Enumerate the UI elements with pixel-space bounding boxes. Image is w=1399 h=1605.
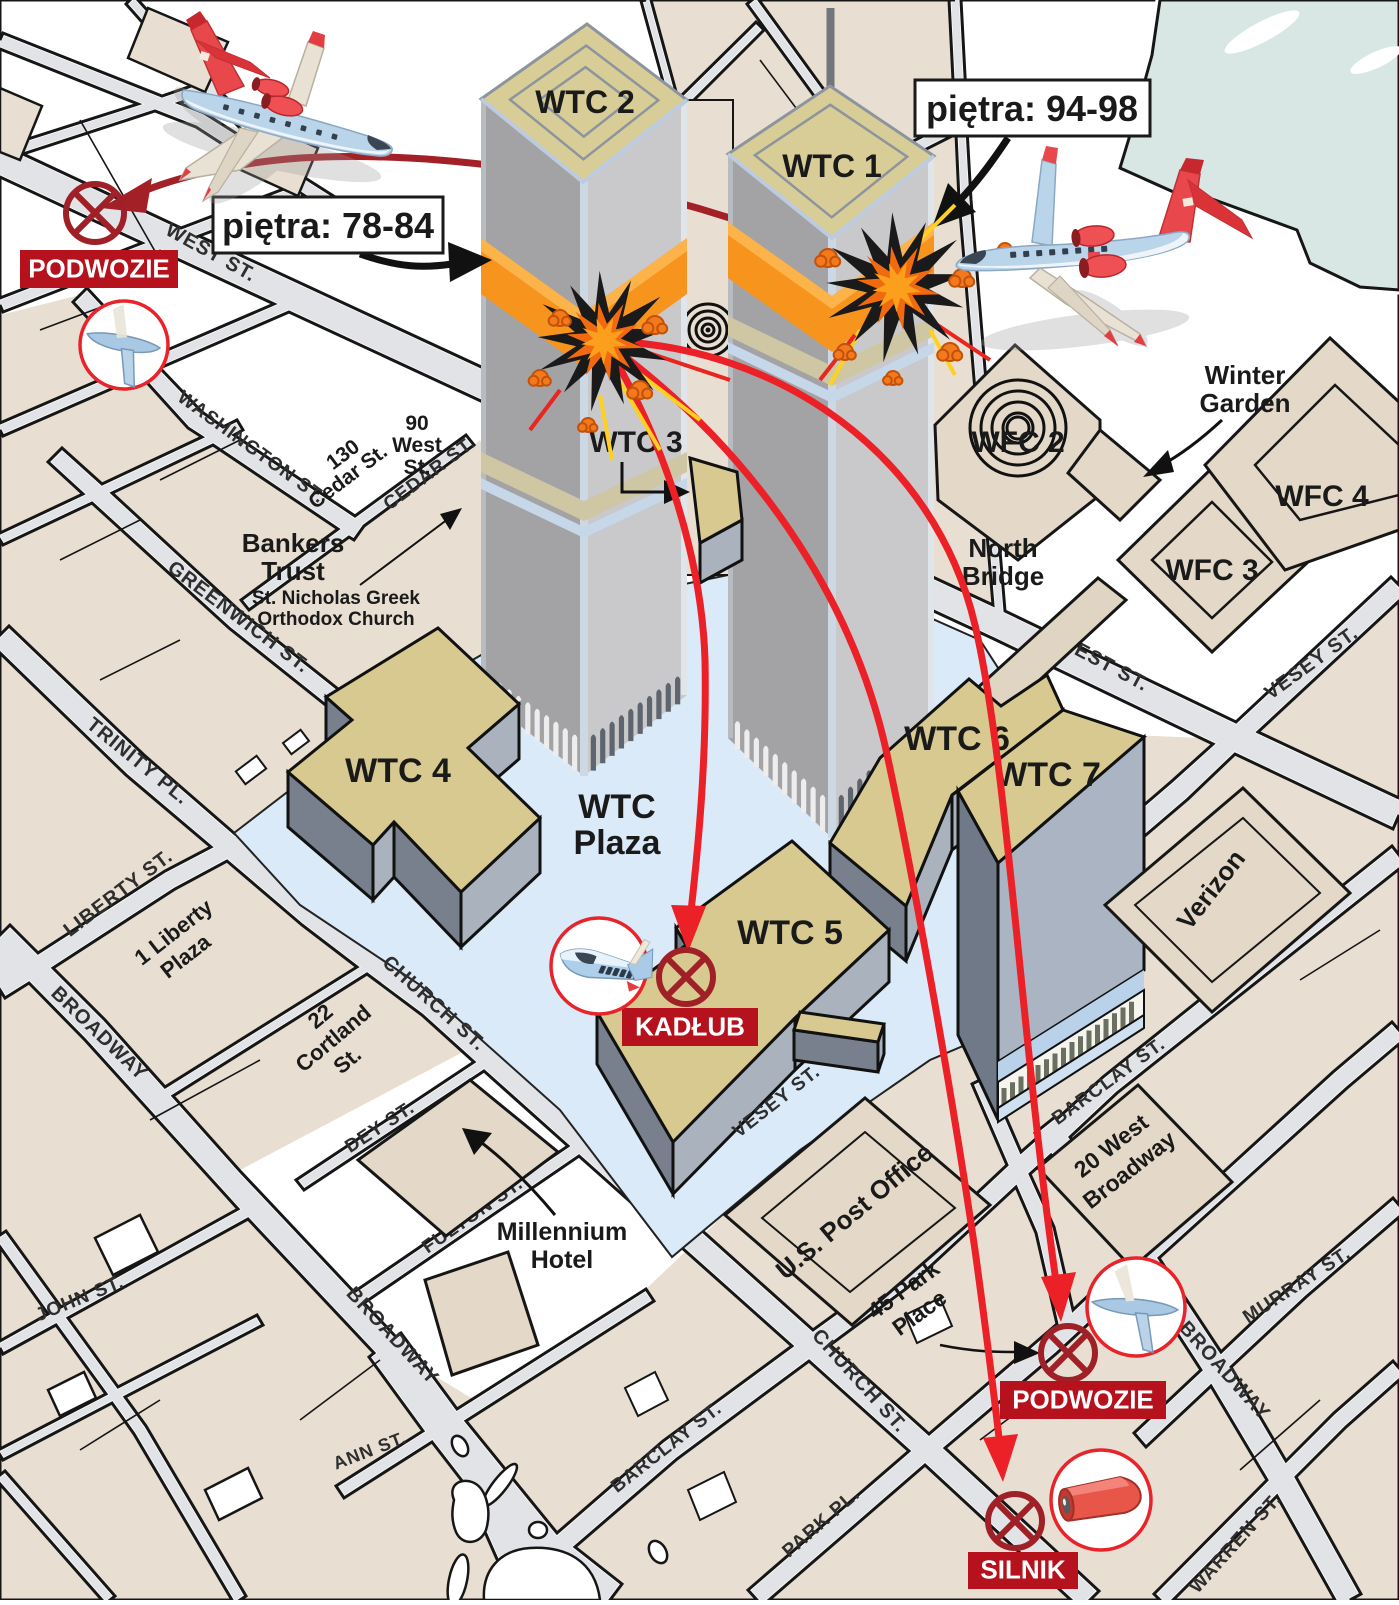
svg-text:St. Nicholas Greek: St. Nicholas Greek	[252, 588, 420, 609]
svg-text:Millennium: Millennium	[497, 1218, 628, 1246]
svg-text:WFC 3: WFC 3	[1165, 554, 1258, 587]
svg-text:piętra: 78-84: piętra: 78-84	[222, 205, 434, 246]
svg-text:90: 90	[405, 412, 428, 435]
svg-text:piętra: 94-98: piętra: 94-98	[926, 88, 1138, 129]
svg-text:WTC: WTC	[578, 788, 655, 826]
svg-text:Garden: Garden	[1199, 388, 1290, 418]
svg-text:PODWOZIE: PODWOZIE	[1012, 1384, 1154, 1414]
svg-text:WFC 2: WFC 2	[971, 426, 1064, 459]
svg-text:Plaza: Plaza	[574, 824, 662, 862]
svg-text:Bankers: Bankers	[242, 528, 345, 558]
svg-text:PODWOZIE: PODWOZIE	[28, 253, 170, 283]
svg-text:WTC 1: WTC 1	[782, 148, 882, 184]
svg-text:WFC 4: WFC 4	[1275, 480, 1369, 513]
svg-text:SILNIK: SILNIK	[980, 1555, 1065, 1585]
svg-text:WTC 5: WTC 5	[737, 914, 843, 952]
svg-text:Winter: Winter	[1205, 360, 1286, 390]
svg-text:WTC 2: WTC 2	[535, 84, 635, 120]
svg-text:St.: St.	[404, 456, 431, 479]
svg-text:North: North	[968, 533, 1037, 563]
svg-text:WTC 4: WTC 4	[345, 752, 451, 790]
svg-text:Hotel: Hotel	[531, 1246, 594, 1274]
svg-text:Orthodox Church: Orthodox Church	[257, 609, 414, 630]
svg-text:KADŁUB: KADŁUB	[635, 1011, 745, 1041]
svg-text:WTC 3: WTC 3	[589, 426, 682, 459]
svg-text:Trust: Trust	[261, 556, 325, 586]
svg-text:West: West	[392, 434, 442, 457]
svg-text:WTC 7: WTC 7	[995, 756, 1101, 794]
svg-text:Bridge: Bridge	[962, 561, 1044, 591]
